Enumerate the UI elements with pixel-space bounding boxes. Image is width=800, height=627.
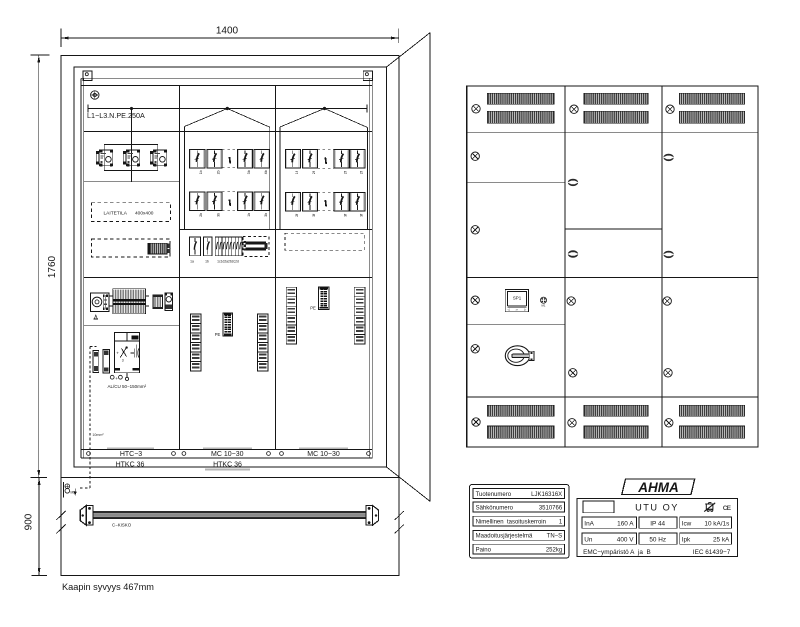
svg-text:10 kA/1s: 10 kA/1s — [704, 520, 729, 527]
svg-text:HTC−3: HTC−3 — [120, 451, 142, 458]
svg-text:2f: 2f — [312, 171, 316, 174]
svg-text:900: 900 — [24, 513, 35, 530]
svg-text:3: 3 — [122, 359, 124, 363]
svg-text:1b: 1b — [247, 213, 251, 217]
svg-text:Un: Un — [584, 536, 593, 543]
svg-text:C−KISKO: C−KISKO — [112, 523, 132, 528]
svg-text:HTKC 36: HTKC 36 — [116, 461, 145, 468]
svg-text:+: + — [115, 376, 118, 381]
svg-text:1f: 1f — [295, 171, 299, 174]
svg-text:3f: 3f — [359, 214, 363, 217]
svg-text:+: + — [116, 351, 119, 356]
svg-text:1a: 1a — [190, 260, 194, 264]
svg-text:Kaapin syvyys 467mm: Kaapin syvyys 467mm — [62, 582, 154, 592]
svg-text:EMC−ympäristö A ja B: EMC−ympäristö A ja B — [583, 549, 651, 556]
svg-text:2b: 2b — [216, 170, 220, 174]
svg-text:1b: 1b — [199, 170, 203, 174]
svg-text:L1−L3.N.PE.250A: L1−L3.N.PE.250A — [87, 111, 145, 120]
svg-text:3f: 3f — [343, 214, 347, 217]
svg-text:50 Hz: 50 Hz — [649, 536, 666, 543]
svg-text:TN−S: TN−S — [547, 534, 563, 540]
svg-text:PE: PE — [310, 306, 316, 311]
svg-text:LJK16316X: LJK16316X — [531, 492, 562, 498]
svg-text:10mm²: 10mm² — [92, 433, 104, 437]
svg-text:25 kA: 25 kA — [713, 536, 730, 543]
svg-text:2f: 2f — [295, 214, 299, 217]
svg-text:1400: 1400 — [216, 26, 239, 37]
svg-text:1760: 1760 — [47, 255, 58, 278]
svg-text:4b: 4b — [264, 170, 268, 174]
svg-text:3510766: 3510766 — [539, 505, 563, 511]
svg-text:3b: 3b — [216, 213, 220, 217]
svg-text:1b: 1b — [205, 260, 209, 264]
svg-text:Paino: Paino — [476, 548, 492, 554]
svg-text:400 V: 400 V — [617, 536, 634, 543]
svg-text:160 A: 160 A — [617, 520, 634, 527]
svg-text:3b: 3b — [264, 213, 268, 217]
svg-text:MC 10−30: MC 10−30 — [307, 451, 340, 458]
svg-text:AHMA: AHMA — [637, 480, 679, 495]
svg-text:Icw: Icw — [682, 520, 692, 527]
svg-text:Ipk: Ipk — [682, 536, 691, 543]
svg-text:IP 44: IP 44 — [650, 520, 665, 527]
svg-text:3b: 3b — [247, 170, 251, 174]
svg-text:3f: 3f — [312, 214, 316, 217]
svg-text:252kg: 252kg — [546, 548, 562, 554]
svg-text:2f: 2f — [359, 171, 363, 174]
svg-text:2f: 2f — [343, 171, 347, 174]
svg-text:MC 10−30: MC 10−30 — [211, 451, 244, 458]
svg-text:Maadoitusjärjestelmä: Maadoitusjärjestelmä — [476, 534, 533, 540]
svg-text:M1: M1 — [542, 304, 546, 308]
svg-text:HTKC 36: HTKC 36 — [213, 461, 242, 468]
svg-text:2b: 2b — [199, 213, 203, 217]
svg-text:1c1d2a2b2c2d: 1c1d2a2b2c2d — [217, 260, 239, 264]
svg-text:LAITETILA: LAITETILA — [104, 210, 128, 216]
svg-text:Nimellinen tasoituskerroin: Nimellinen tasoituskerroin — [476, 520, 546, 526]
svg-text:Sähkönumero: Sähkönumero — [476, 505, 514, 511]
svg-text:InA: InA — [584, 520, 594, 527]
svg-text:IEC 61439−7: IEC 61439−7 — [693, 549, 731, 556]
svg-text:PE: PE — [215, 332, 221, 337]
svg-text:SP1: SP1 — [513, 296, 522, 301]
svg-text:400x400: 400x400 — [135, 210, 154, 216]
svg-text:Tuotenumero: Tuotenumero — [476, 492, 512, 498]
svg-text:AL/CU 50−150mm²: AL/CU 50−150mm² — [108, 384, 147, 389]
svg-text:UTU OY: UTU OY — [635, 503, 679, 513]
